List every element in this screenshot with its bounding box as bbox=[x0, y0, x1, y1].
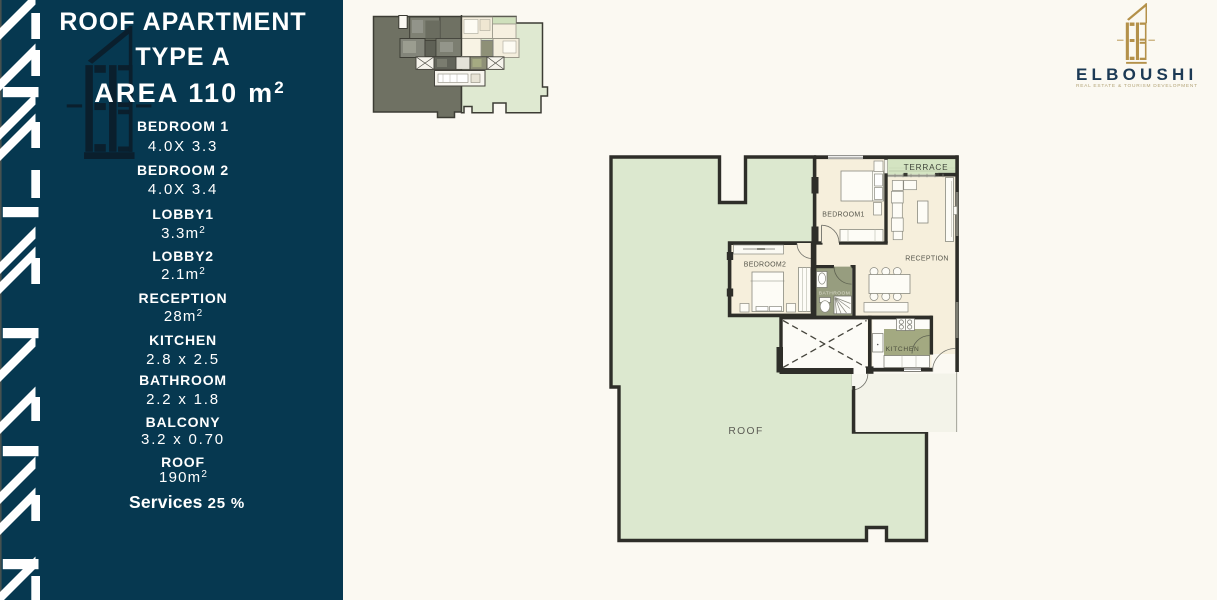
svg-text:BEDROOM2: BEDROOM2 bbox=[744, 262, 786, 269]
svg-text:RECEPTION: RECEPTION bbox=[905, 256, 949, 263]
svg-text:BEDROOM1: BEDROOM1 bbox=[822, 212, 864, 219]
svg-text:ROOF: ROOF bbox=[728, 426, 763, 437]
svg-text:TERRACE: TERRACE bbox=[904, 163, 949, 172]
svg-text:KITCHEN: KITCHEN bbox=[886, 346, 920, 353]
